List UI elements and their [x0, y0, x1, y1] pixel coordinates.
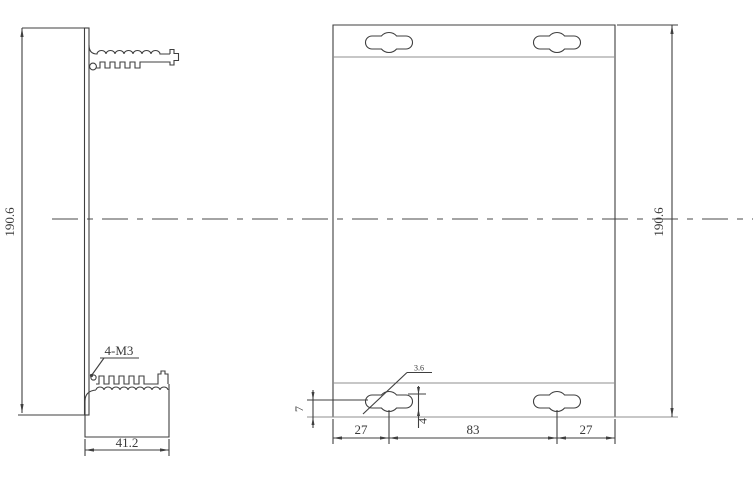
technical-drawing-canvas: 4-M3 190.6 41.2 — [0, 0, 753, 482]
dim-height-front-label: 190.6 — [651, 207, 666, 237]
heatsink-fins-bottom — [85, 371, 169, 437]
dim-bottom-spans: 27 83 27 — [333, 410, 615, 444]
slot-callout-label: 3.6 — [414, 364, 424, 373]
dim-depth-side: 41.2 — [85, 435, 169, 456]
dim-height-side: 190.6 — [2, 28, 86, 415]
dim-height-side-label: 190.6 — [2, 207, 17, 237]
dimension-drawing: 4-M3 190.6 41.2 — [0, 0, 753, 482]
slot-callout: 3.6 — [363, 364, 432, 415]
dim-slot-offset-label: 7 — [292, 406, 306, 412]
mounting-plate — [85, 28, 90, 415]
hole-callout-label: 4-M3 — [105, 343, 134, 358]
hole-callout: 4-M3 — [90, 343, 139, 377]
enclosure-outline — [333, 25, 615, 417]
dim-slot-width-label: 4 — [416, 418, 430, 424]
dim-bottom-left-label: 27 — [355, 422, 369, 437]
dim-depth-side-label: 41.2 — [116, 435, 139, 450]
keyhole-slot-bottom-right — [534, 391, 581, 411]
keyhole-slot-top-right — [534, 32, 581, 52]
front-view: 3.6 190.6 7 4 — [292, 25, 678, 444]
dim-slot-width: 4 — [408, 386, 430, 428]
fin-curl — [90, 63, 97, 70]
dim-bottom-right-label: 27 — [580, 422, 594, 437]
keyhole-slot-top-left — [366, 32, 413, 52]
side-view: 4-M3 190.6 41.2 — [2, 28, 179, 456]
heatsink-fins-top — [89, 45, 179, 70]
dim-bottom-center-label: 83 — [467, 422, 480, 437]
keyhole-slot-bottom-left — [366, 391, 413, 411]
dim-height-front: 190.6 — [617, 25, 678, 417]
